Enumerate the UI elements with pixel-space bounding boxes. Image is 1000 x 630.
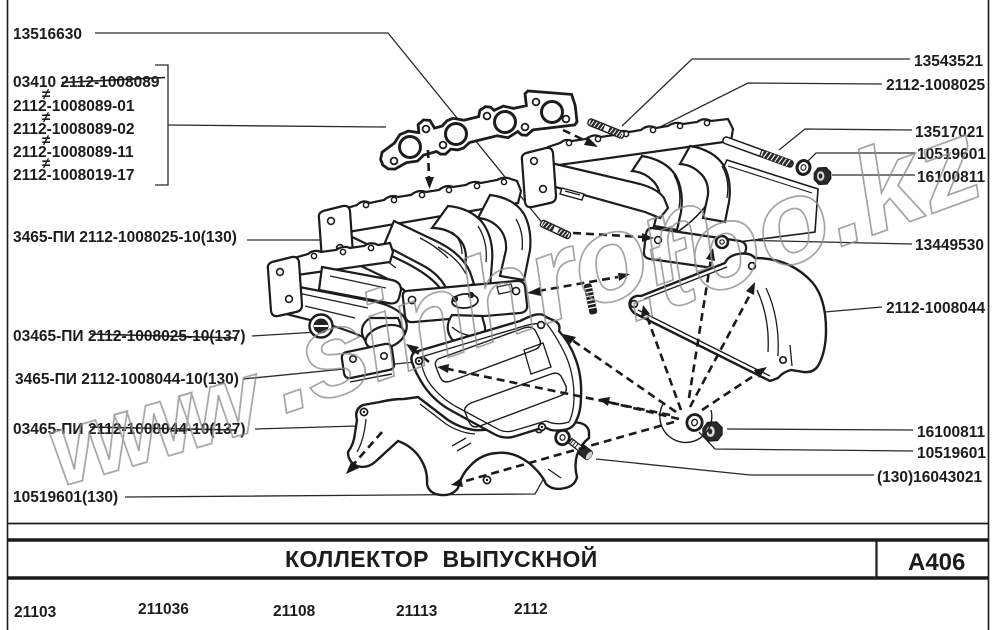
svg-text:2112-1008089-02: 2112-1008089-02 [13, 121, 135, 138]
svg-text:2112: 2112 [514, 601, 548, 618]
svg-text:2112-1008044: 2112-1008044 [886, 300, 986, 317]
svg-text:А406: А406 [908, 549, 965, 576]
svg-text:211036: 211036 [138, 601, 189, 618]
svg-text:2112-1008019-17: 2112-1008019-17 [13, 167, 135, 184]
svg-text:13543521: 13543521 [914, 53, 983, 70]
svg-text:10519601: 10519601 [917, 445, 986, 462]
svg-text:≠: ≠ [42, 86, 51, 103]
svg-text:16100811: 16100811 [917, 424, 985, 441]
svg-text:21113: 21113 [396, 603, 438, 620]
svg-text:КОЛЛЕКТОР ВЫПУСКНОЙ: КОЛЛЕКТОР ВЫПУСКНОЙ [285, 545, 598, 572]
svg-text:3465-ПИ 2112-1008025-10(130): 3465-ПИ 2112-1008025-10(130) [13, 229, 237, 246]
svg-text:≠: ≠ [42, 132, 51, 149]
svg-text:(130)16043021: (130)16043021 [877, 469, 983, 486]
svg-text:2112-1008089-01: 2112-1008089-01 [13, 98, 135, 115]
svg-text:≠: ≠ [42, 109, 51, 126]
svg-text:21108: 21108 [273, 603, 316, 620]
svg-text:21103: 21103 [14, 604, 57, 621]
svg-text:03410 2112-1008089: 03410 2112-1008089 [13, 74, 160, 91]
svg-text:13516630: 13516630 [13, 26, 82, 43]
svg-text:≠: ≠ [42, 155, 51, 172]
svg-text:2112-1008025: 2112-1008025 [886, 77, 986, 94]
svg-text:2112-1008089-11: 2112-1008089-11 [13, 144, 134, 161]
